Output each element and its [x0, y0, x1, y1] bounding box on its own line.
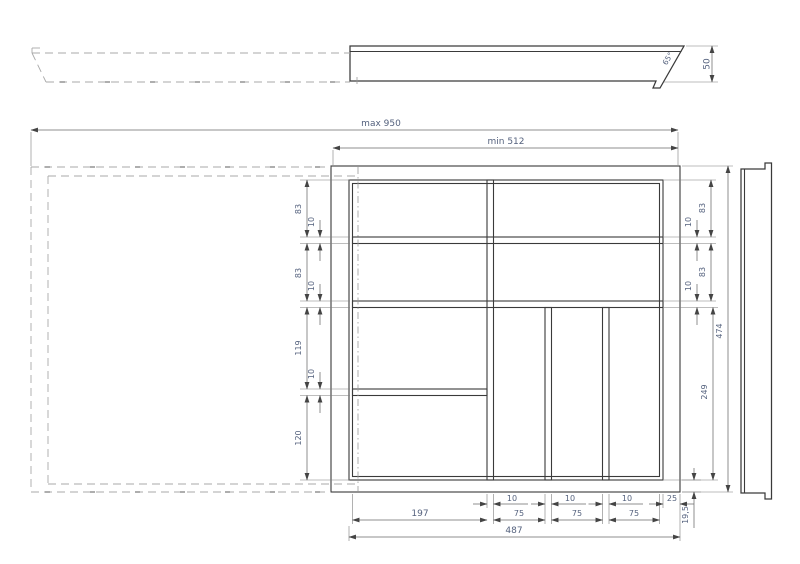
left-dimension-chain: 83 10 83 10 119 10 120 — [294, 180, 350, 480]
left-dim-83-mid-label: 83 — [294, 268, 303, 278]
right-dim-249-label: 249 — [700, 384, 709, 399]
slot-divider-a — [545, 308, 552, 481]
top-dimensions: max 950 min 512 — [31, 119, 678, 166]
right-dim-83-mid-label: 83 — [698, 267, 707, 277]
dim-rim-label: 19,5 — [681, 506, 690, 524]
side-view-body-outline — [350, 46, 684, 88]
plan-view — [31, 166, 680, 492]
technical-drawing-cutlery-tray: 50 65° max 950 — [0, 0, 800, 564]
left-dim-83-top-label: 83 — [294, 204, 303, 214]
profile-outline — [741, 163, 772, 499]
right-dimension-chain: 10 83 10 83 249 474 — [664, 166, 733, 492]
min-width-label: min 512 — [487, 137, 524, 147]
max-width-label: max 950 — [361, 119, 401, 129]
left-dim-10-1-label: 10 — [307, 217, 316, 227]
divider-horizontal-1 — [353, 237, 664, 244]
right-dim-10-1-label: 10 — [684, 217, 693, 227]
dim-div1-label: 10 — [507, 494, 517, 503]
divider-horizontal-3-left — [353, 389, 488, 396]
dim-75-2-label: 75 — [572, 509, 582, 518]
slot-divider-b — [603, 308, 610, 481]
left-dim-120-label: 120 — [294, 430, 303, 445]
left-dim-119-label: 119 — [294, 340, 303, 355]
left-dim-10-3-label: 10 — [307, 369, 316, 379]
tray-rim-outer-line — [349, 180, 663, 480]
divider-horizontal-2 — [353, 301, 664, 308]
dim-75-3-label: 75 — [629, 509, 639, 518]
drawing-canvas: 50 65° max 950 — [0, 0, 800, 564]
dim-div2-label: 10 — [565, 494, 575, 503]
dim-197-label: 197 — [411, 509, 428, 519]
right-dim-10-2-label: 10 — [684, 281, 693, 291]
divider-center-vertical — [487, 180, 494, 480]
side-view-hidden-slant-edge — [32, 53, 46, 82]
tray-outer-edge — [331, 166, 680, 492]
dim-487-label: 487 — [505, 526, 522, 536]
bottom-dimension-chain: 10 10 10 25 197 75 75 75 19,5 487 — [349, 468, 701, 541]
tray-rim-inner-line — [353, 184, 660, 477]
right-dim-83-top-label: 83 — [698, 203, 707, 213]
dim-wall-label: 25 — [667, 494, 677, 503]
left-dim-10-2-label: 10 — [307, 281, 316, 291]
dim-75-1-label: 75 — [514, 509, 524, 518]
right-dim-474-label: 474 — [715, 323, 724, 338]
height-dim-label: 50 — [703, 58, 713, 70]
dim-div3-label: 10 — [622, 494, 632, 503]
side-elevation-view: 50 65° — [32, 46, 718, 88]
side-wall-profile-view — [741, 163, 772, 499]
